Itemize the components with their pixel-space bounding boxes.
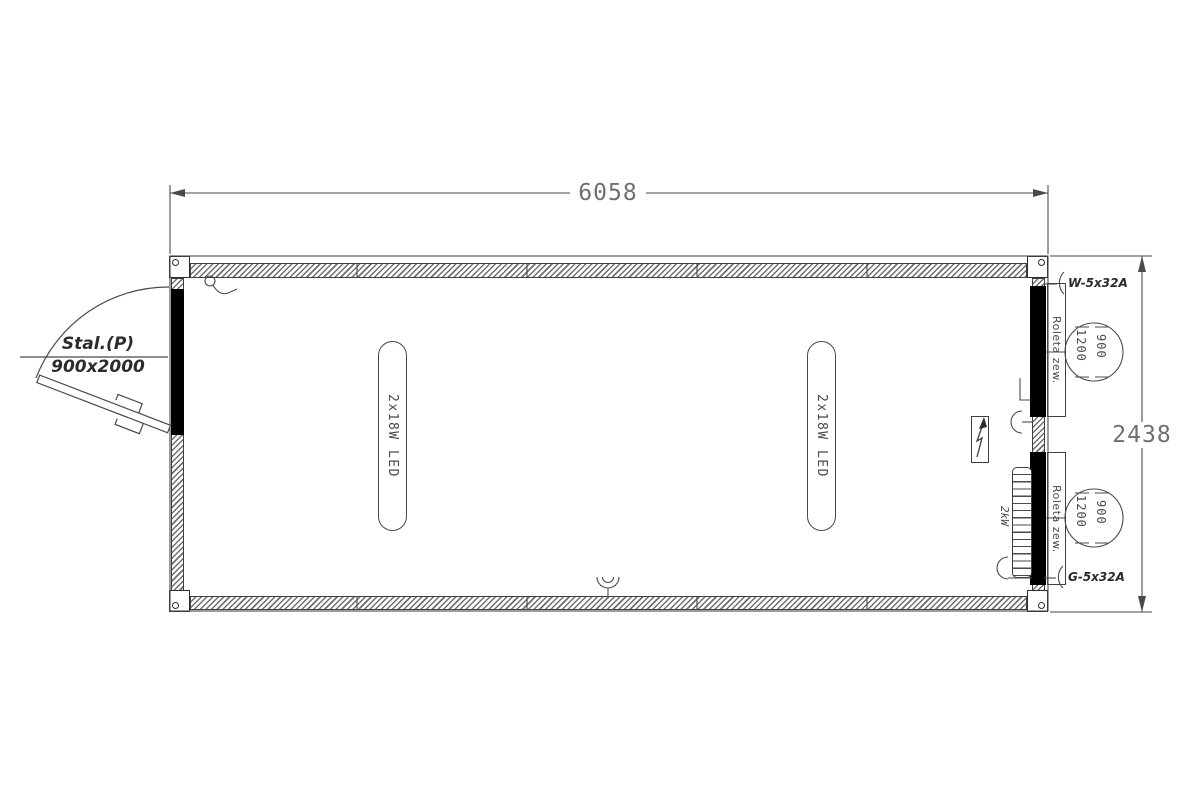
socket-icon-bottom-wall	[597, 577, 619, 597]
door-leaf	[37, 375, 171, 433]
power-feed-label: W-5x32A	[1068, 276, 1128, 290]
window-width-dim: 900	[1094, 500, 1108, 525]
socket-circuit-label: G-5x32A	[1068, 570, 1125, 584]
feed-label-leader	[1044, 272, 1064, 294]
socket-icon-heater	[997, 557, 1032, 579]
floor-plan-drawing: Roleta zew. Roleta zew. 2x18W LED 2x18W …	[0, 0, 1200, 800]
heater-power-label: 2kW	[998, 506, 1011, 526]
lightning-bolt-icon	[977, 417, 987, 457]
dim-height-value: 2438	[1106, 422, 1178, 448]
dim-arrow-left-icon	[170, 189, 185, 197]
window-offset-dim: 1200	[1074, 329, 1088, 362]
window-bracket-icon	[1020, 378, 1031, 400]
dim-width-value: 6058	[570, 180, 646, 206]
socket-label-leader	[1044, 566, 1063, 588]
container-outline	[170, 256, 1048, 611]
dim-arrow-right-icon	[1033, 189, 1048, 197]
door-type-label: Stal.(P)	[48, 334, 148, 354]
door-size-label: 900x2000	[46, 357, 150, 377]
window-offset-dim: 1200	[1074, 495, 1088, 528]
light-switch-icon	[205, 276, 237, 294]
dim-arrow-down-icon	[1138, 596, 1146, 612]
dim-arrow-up-icon	[1138, 256, 1146, 272]
wall-panel-dividers	[357, 263, 867, 610]
window-width-dim: 900	[1094, 334, 1108, 359]
linework-overlay	[0, 0, 1200, 800]
socket-icon-right-wall	[1011, 411, 1032, 433]
